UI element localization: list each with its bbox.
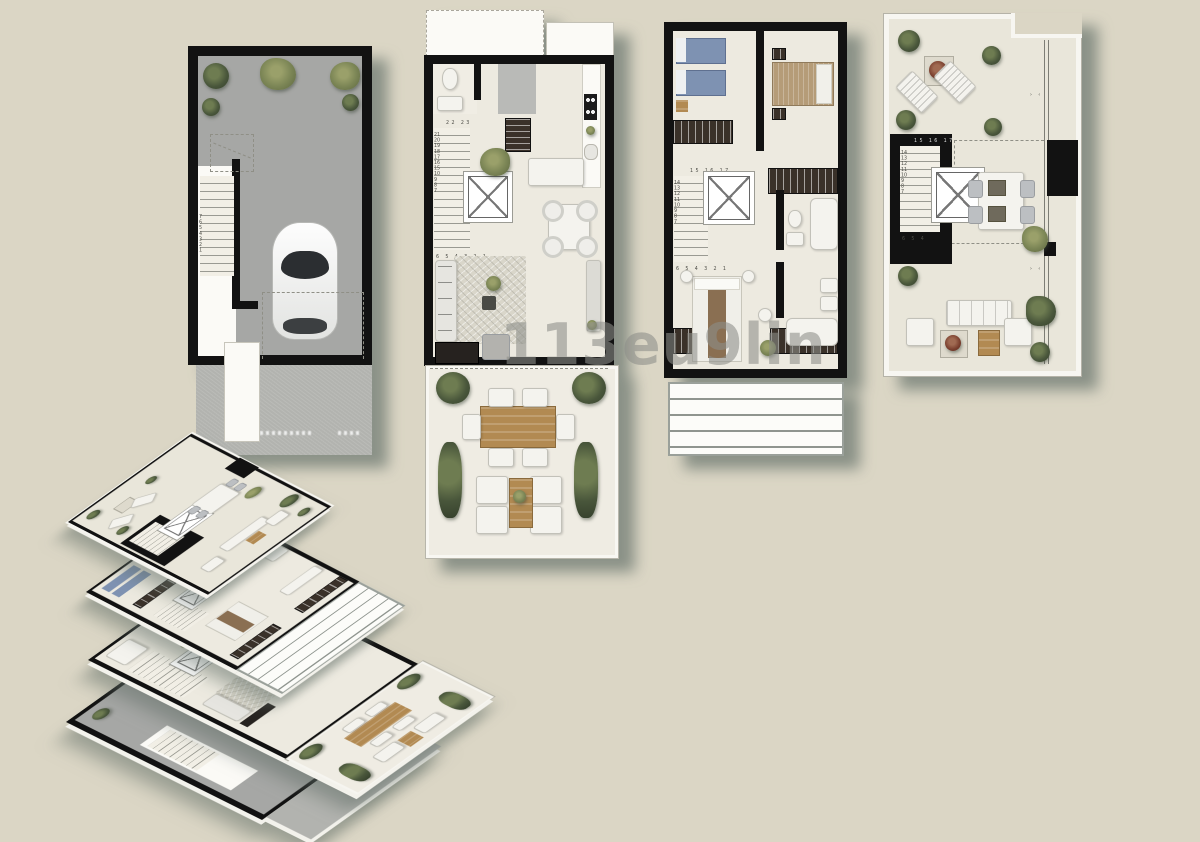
watermark-text: 113eu9lin [500,312,827,378]
roof-chair [1020,180,1035,198]
stair-numbers-left: 14 13 12 11 10 9 8 7 [901,150,907,195]
kitchen-sink [584,144,598,160]
plant [203,63,229,89]
rail-chevrons: › ‹ [1030,266,1043,272]
placemat [988,206,1006,222]
toilet [788,210,802,228]
plant [342,94,359,111]
iso-bush [295,506,312,517]
stair-hall-wall [232,301,258,309]
twin-bed-pillow [676,70,686,94]
zone-line [954,140,1044,141]
kitchen-plant [586,126,595,135]
table-plant [513,490,526,503]
twin-bed-pillow [676,38,686,62]
outdoor-dining-table [480,406,556,448]
deck-notch [1011,13,1082,38]
nightstand-lamp [680,270,693,283]
iso-armchair [200,556,226,573]
plant [260,58,296,90]
bedroom-divider [756,31,764,151]
zone-line [954,140,955,170]
stair-void-skylight [468,176,508,218]
roof-armchair [906,318,934,346]
bath-sink [786,232,804,246]
master-nightstand [772,48,786,60]
iso-lounge [412,712,446,734]
plant [1022,226,1048,252]
entry-canopy [426,10,544,57]
bush [898,266,918,286]
stair-numbers-left: 14 13 12 11 10 9 8 7 [674,180,680,225]
car-windshield [281,251,330,279]
stair-void-skylight [708,176,750,220]
parking-outline [262,292,364,359]
iso-armchair [264,510,290,527]
pergola-roof [668,382,844,456]
floor-plan-basement: 7 6 5 4 3 2 1 [188,46,372,456]
storage-outline [210,134,254,172]
floor-plan-first: 15 16 17 14 13 12 11 10 9 8 7 6 5 4 3 2 … [664,22,847,456]
wc-wall [474,64,481,100]
lounge-coffee-table [509,478,533,528]
lounge-chair [530,476,562,504]
plant [480,148,510,176]
iso-stairs [154,598,210,632]
cooktop [584,94,597,120]
master-nightstand [772,108,786,120]
iso-plant [242,485,265,500]
outdoor-chair [488,388,514,407]
floor-plan-ground: 22 23 21 20 19 18 17 16 15 10 9 8 7 6 5 … [424,8,616,557]
iso-hedge [334,761,375,784]
rug-plant [486,276,501,291]
iso-hedge [434,689,475,712]
iso-bush [143,475,159,485]
entry-landing [498,64,536,114]
bush [984,118,1002,136]
outdoor-chair [522,448,548,467]
dining-chair [542,236,564,258]
stair-numbers-left: 21 20 19 18 17 16 15 10 9 8 7 [434,132,440,194]
stair-numbers-bottom: 6 5 4 [902,236,926,242]
driveway [196,365,372,455]
iso-bush [84,509,103,521]
iso-chimney [225,458,259,479]
tall-hedge [574,442,598,518]
stair-numbers-top: 15 16 17 [914,138,955,144]
tv-console [435,342,479,364]
tall-hedge [438,442,462,518]
iso-palm [276,492,302,509]
outdoor-chair [556,414,575,440]
floorplan-sheet: { "title": "townhouse-floor-plans", "wat… [0,0,1200,716]
nightstand-lamp [742,270,755,283]
stair-numbers-top: 22 23 [446,120,472,126]
lounge-chair [530,506,562,534]
plant [202,98,220,116]
master-bed-pillows [816,64,832,104]
roof-sofa [946,300,1012,326]
palm-plant [1026,296,1056,326]
iso-lounger [130,492,157,509]
lounge-chair [476,506,508,534]
double-sink [820,296,838,311]
roof-chair [1020,206,1035,224]
driveway-paint-marks [338,431,362,435]
roof-coffee-table [978,330,1000,356]
iso-plant [89,706,114,721]
coffee-table [482,296,496,310]
entry-porch [224,342,260,442]
dining-chair [576,236,598,258]
dining-chair [576,200,598,222]
floor-plan-solarium: › ‹ › ‹ 15 16 17 14 13 12 11 10 9 8 7 6 … [884,14,1081,376]
sofa-cushions [438,266,452,332]
placemat [988,180,1006,196]
red-plant [945,335,961,351]
nightstand [676,100,688,112]
stair-numbers-left: 7 6 5 4 3 2 1 [199,214,202,253]
bush [1030,342,1050,362]
bath-wall [776,262,784,318]
rail-chevrons: › ‹ [1030,92,1043,98]
bush [896,110,916,130]
basement-stairs [200,176,234,276]
roof-chair [968,180,983,198]
hall-closet [505,118,531,152]
outdoor-chair [522,388,548,407]
roof-chair [968,206,983,224]
kitchen-island [528,158,584,186]
round-planter [436,372,470,404]
wardrobe [673,120,733,144]
bathtub [810,198,838,250]
outdoor-chair [488,448,514,467]
outdoor-chair [462,414,481,440]
bath-wall [776,190,784,250]
chimney-block [1047,140,1078,196]
wc-sink [437,96,463,111]
dining-chair [542,200,564,222]
entry-canopy [546,22,614,57]
bush [898,30,920,52]
bush [982,46,1001,65]
bedroom3-pillows [694,278,740,290]
plant [330,62,360,90]
toilet [442,68,458,90]
double-sink [820,278,838,293]
stair-numbers-top: 15 16 17 [690,168,731,174]
lounge-chair [476,476,508,504]
roof-armchair [1004,318,1032,346]
